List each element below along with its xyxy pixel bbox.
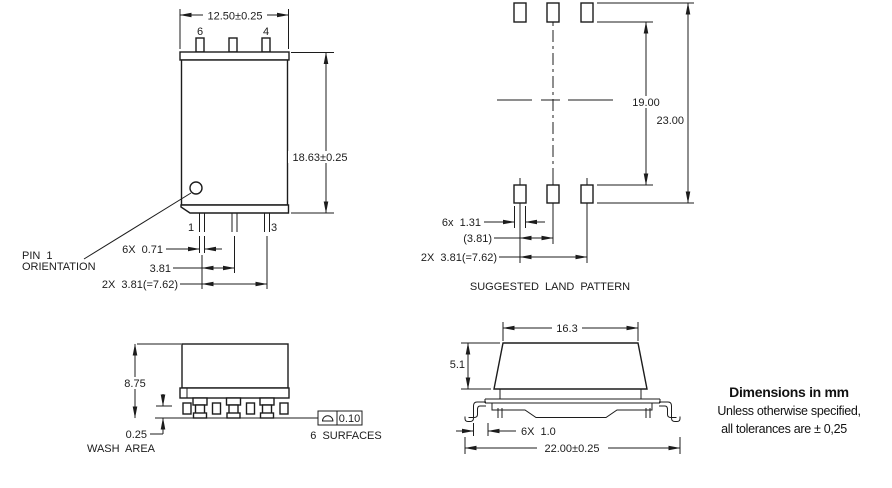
end-dim-lid-width-label: 16.3 [556,323,577,335]
land-pattern-caption: SUGGESTED LAND PATTERN [470,281,630,293]
front-top-pin-4 [262,38,270,52]
land-dim-pad-width-label: 6x 1.31 [442,217,481,229]
side-front-leads [193,398,274,418]
pin-number-6: 6 [197,26,203,38]
side-dim-standoff-label: 0.25 [126,429,147,441]
front-body-top-cap [180,52,289,60]
land-dim-outer-label: 23.00 [656,115,684,127]
side-dim-height-label: 8.75 [124,378,145,390]
land-pattern-centerlines [497,3,613,263]
land-dim-pad-span-label: 2X 3.81(=7.62) [421,252,497,264]
front-dim-height [288,53,352,214]
pad-top-right [581,3,593,22]
end-view: 16.3 5.1 6X 1.0 22.00±0.25 [450,322,680,455]
note-tolerance-1: Unless otherwise specified, [717,404,860,418]
front-pin-centerlines [200,236,268,289]
wash-area-label: WASH AREA [87,443,156,455]
end-dim-lead-foot-label: 6X 1.0 [521,426,556,438]
drawing-svg: 12.50±0.25 18.63±0.25 6X 0.71 3.81 2X 3.… [0,0,892,488]
front-dim-lead-pitch-label: 3.81 [150,263,171,275]
profile-tolerance-value: 0.10 [339,413,360,425]
front-dim-lead-span-label: 2X 3.81(=7.62) [102,279,178,291]
pad-bottom-right [581,185,593,203]
front-body [182,60,288,205]
note-tolerance-2: all tolerances are ± 0,25 [721,422,847,436]
pad-top-middle [547,3,559,22]
pin1-callout-line2: ORIENTATION [22,261,96,273]
surface-profile-icon [323,416,333,421]
pin-number-1: 1 [188,222,194,234]
front-body-bottom-cap [181,205,289,213]
end-bottom-plate [492,403,652,418]
mechanical-drawing: 12.50±0.25 18.63±0.25 6X 0.71 3.81 2X 3.… [0,0,892,488]
side-flange [180,388,289,398]
side-body [182,344,288,388]
front-top-pin-6 [196,38,204,52]
end-dim-lid-height-label: 5.1 [450,359,465,371]
end-header [485,399,660,403]
pin-number-3: 3 [271,222,277,234]
front-dim-lead-width-label: 6X 0.71 [122,244,163,256]
side-view: 8.75 0.25 WASH AREA 0.10 6 SURFACES [87,344,382,455]
notes-block: Dimensions in mm Unless otherwise specif… [717,384,860,436]
front-view: 12.50±0.25 18.63±0.25 6X 0.71 3.81 2X 3.… [22,9,352,291]
land-dim-inner-label: 19.00 [632,97,660,109]
pad-top-left [514,3,526,22]
end-dim-lid-height [461,343,500,389]
side-dim-standoff [150,394,172,434]
profile-surfaces-note: 6 SURFACES [310,430,381,442]
end-dim-lead-foot [456,423,516,436]
land-dim-pad-pitch-label: (3.81) [463,233,492,245]
land-pattern-view: 19.00 23.00 6x 1.31 (3.81) 2X 3.81(=7.62… [421,3,694,293]
front-bottom-pins [200,213,270,232]
end-lid [494,343,647,389]
note-units: Dimensions in mm [729,384,849,400]
front-dim-width-label: 12.50±0.25 [208,11,263,23]
pad-bottom-left [514,185,526,203]
end-gullwing-leads [465,402,680,422]
pad-bottom-middle [547,185,559,203]
front-top-pin-5 [229,38,237,52]
end-dim-overall-label: 22.00±0.25 [545,443,600,455]
front-dim-height-label: 18.63±0.25 [293,152,348,164]
pin-number-4: 4 [263,26,269,38]
